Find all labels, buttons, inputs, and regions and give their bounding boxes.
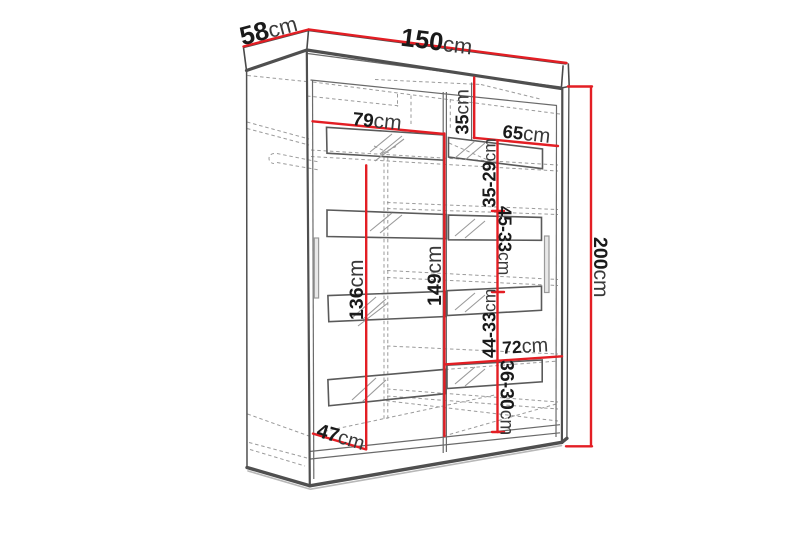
svg-text:200cm: 200cm <box>589 237 612 298</box>
svg-text:72cm: 72cm <box>502 334 549 358</box>
svg-text:136cm: 136cm <box>345 259 368 320</box>
svg-text:45-33cm: 45-33cm <box>495 206 515 275</box>
svg-text:36-30cm: 36-30cm <box>496 360 518 435</box>
svg-text:35-29cm: 35-29cm <box>480 138 500 207</box>
svg-text:44-33cm: 44-33cm <box>480 289 500 358</box>
svg-text:149cm: 149cm <box>423 245 446 306</box>
svg-text:35cm: 35cm <box>453 89 474 134</box>
